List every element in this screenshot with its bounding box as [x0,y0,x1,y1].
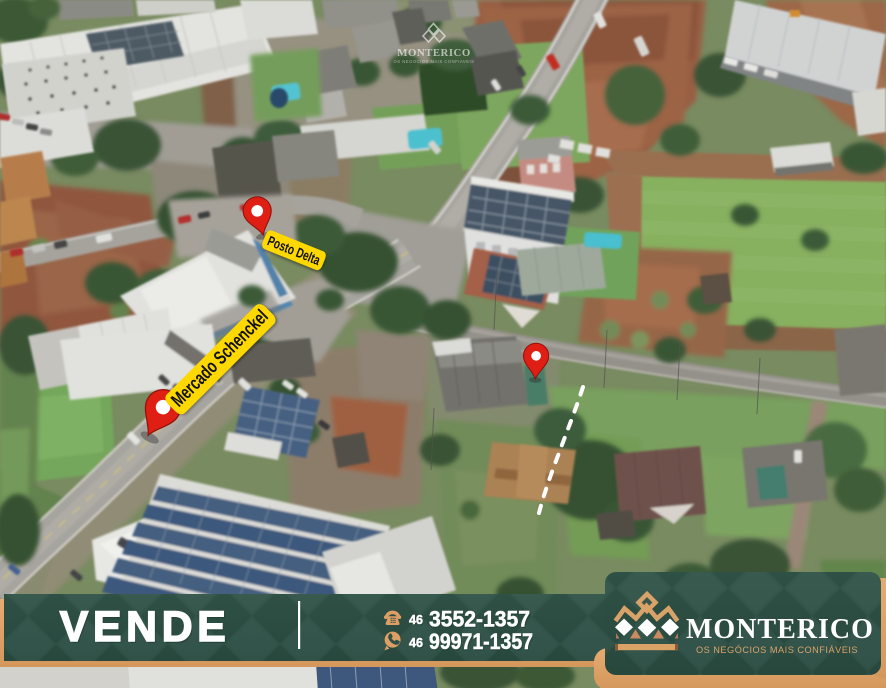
svg-text:99971-1357: 99971-1357 [429,629,533,654]
svg-text:MONTERICO: MONTERICO [686,614,874,645]
svg-text:46: 46 [409,613,423,627]
svg-text:3552-1357: 3552-1357 [429,607,530,632]
svg-text:OS NEGÓCIOS MAIS CONFIÁVEIS: OS NEGÓCIOS MAIS CONFIÁVEIS [696,645,858,655]
svg-text:46: 46 [409,636,423,650]
svg-text:VENDE: VENDE [60,603,231,651]
